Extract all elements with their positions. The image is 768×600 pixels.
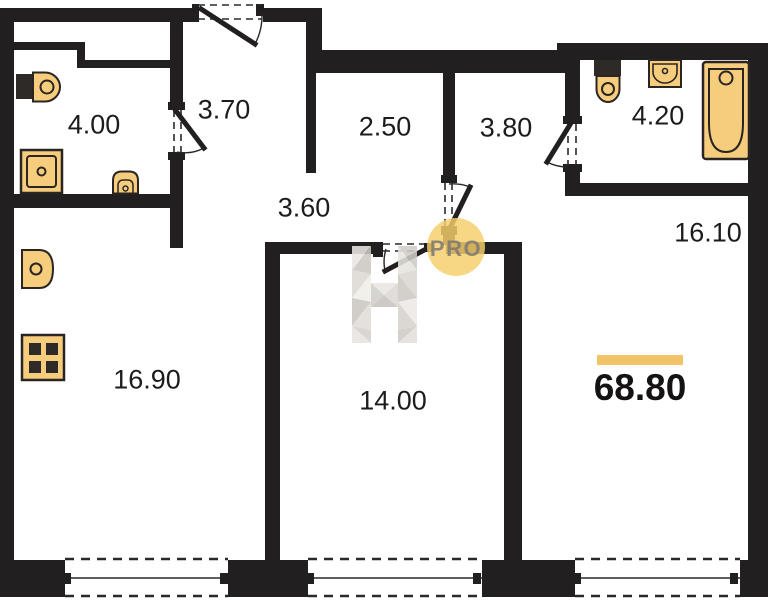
sink: [113, 172, 138, 194]
room-area-label-living-room: 16.10: [674, 218, 742, 249]
sink-2: [649, 60, 681, 87]
room-area-label-kitchen: 16.90: [113, 365, 181, 396]
bathtub: [703, 62, 749, 159]
room-area-label-bathroom: 4.00: [68, 110, 121, 141]
watermark-badge-text: PRO: [430, 236, 482, 261]
room-area-label-hallway: 3.70: [198, 95, 251, 126]
washing-machine: [21, 150, 62, 193]
toilet: [16, 73, 60, 102]
windows: [63, 559, 740, 596]
floor-plan-drawing: PRO: [0, 0, 768, 600]
room-area-label-bathroom-2: 4.20: [632, 101, 685, 132]
watermark-badge: PRO: [427, 218, 485, 276]
total-area-label: 68.80: [594, 367, 687, 409]
room-area-label-corridor: 2.50: [359, 112, 412, 143]
kitchen-sink: [22, 250, 53, 288]
room-area-label-entry: 3.80: [480, 113, 533, 144]
total-area-accent-bar: [597, 355, 683, 365]
room-area-label-bedroom: 14.00: [359, 386, 427, 417]
floor-plan: PRO 4.00 3.70 2.50 3.80 4.20 16.10 3.60 …: [0, 0, 768, 600]
room-area-label-inner-hall: 3.60: [278, 193, 331, 224]
toilet-2: [594, 60, 621, 102]
stove: [22, 335, 64, 380]
